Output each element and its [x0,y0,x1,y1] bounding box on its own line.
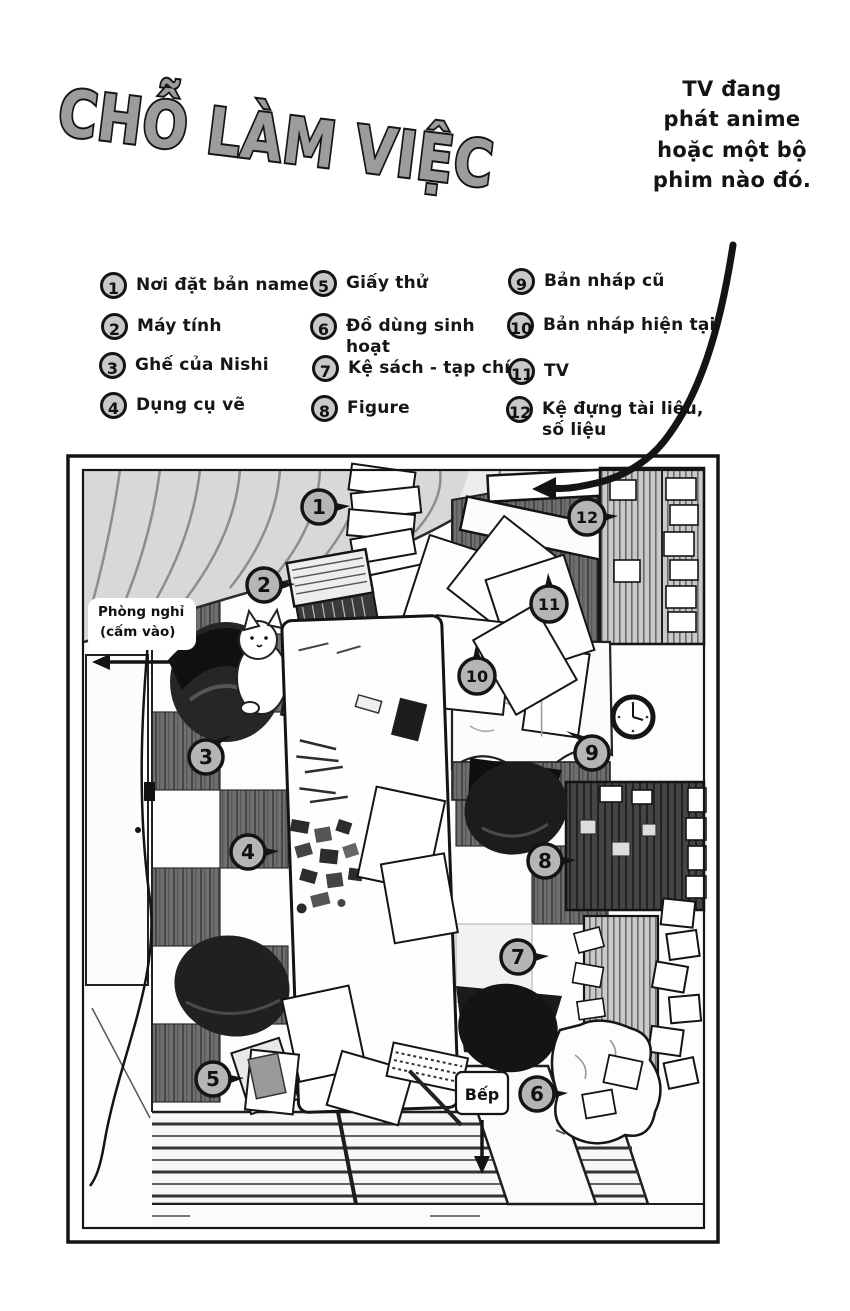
cat [237,610,287,714]
svg-text:6: 6 [530,1082,544,1106]
svg-text:1: 1 [312,495,326,519]
svg-text:7: 7 [511,945,525,969]
annotation-arrow [532,245,733,500]
svg-text:(cấm vào): (cấm vào) [100,623,175,640]
svg-text:5: 5 [206,1067,220,1091]
laundry-pile [552,1021,660,1144]
svg-text:11: 11 [538,595,560,614]
svg-text:12: 12 [576,508,598,527]
work-desk [269,615,470,1131]
manga-page: CHỖ LÀM VIỆC TV đang phát anime hoặc một… [0,0,850,1311]
name-paper-stack [347,464,421,565]
svg-text:Bếp: Bếp [465,1085,500,1104]
svg-text:2: 2 [257,573,271,597]
svg-text:8: 8 [538,849,552,873]
room-map: Nishi [0,0,850,1311]
svg-text:Phòng nghỉ: Phòng nghỉ [98,604,185,620]
wall-clock [613,697,653,737]
svg-text:3: 3 [199,745,213,769]
svg-text:4: 4 [241,840,255,864]
svg-text:10: 10 [466,667,488,686]
figure-shelf [566,782,706,910]
document-shelf-12 [600,468,704,644]
svg-text:9: 9 [585,741,599,765]
